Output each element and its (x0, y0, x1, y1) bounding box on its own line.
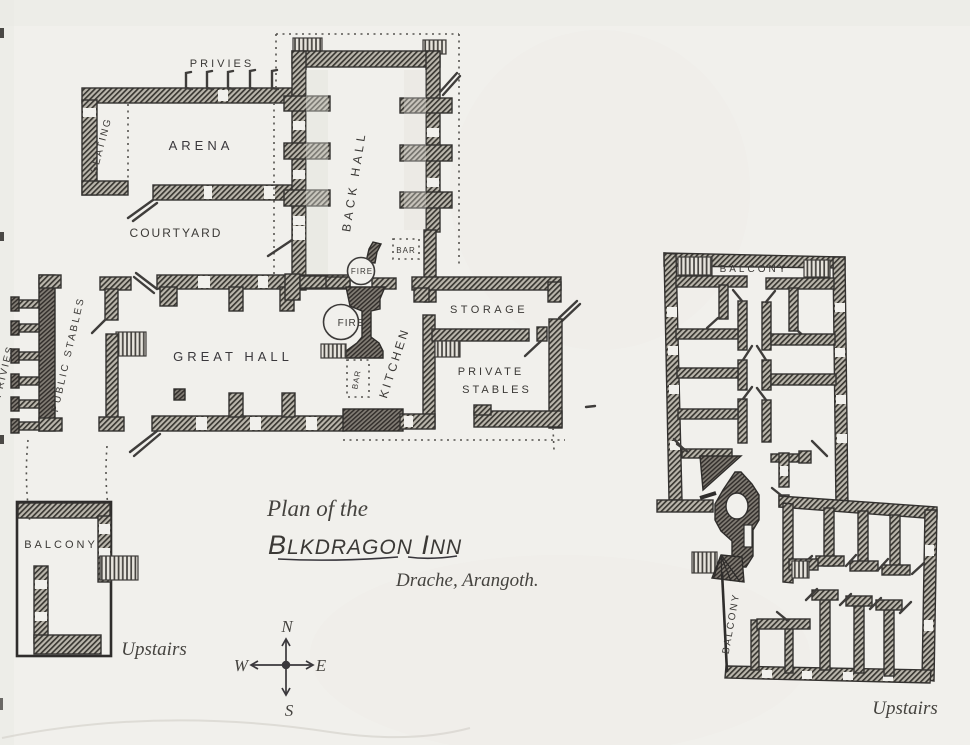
svg-text:BALCONY: BALCONY (720, 264, 789, 275)
svg-text:S: S (285, 701, 294, 720)
svg-text:Plan of the: Plan of the (266, 496, 368, 521)
svg-text:STABLES: STABLES (462, 384, 532, 396)
svg-text:FIRE: FIRE (351, 267, 373, 276)
svg-text:FIRE: FIRE (338, 318, 365, 329)
svg-text:Upstairs: Upstairs (121, 639, 186, 660)
svg-text:BAR: BAR (396, 246, 415, 255)
svg-text:BALCONY: BALCONY (24, 539, 98, 551)
svg-text:ARENA: ARENA (169, 138, 234, 153)
svg-text:STORAGE: STORAGE (450, 304, 528, 316)
svg-text:W: W (234, 656, 250, 675)
svg-text:PRIVATE: PRIVATE (458, 366, 524, 378)
svg-text:GREAT HALL: GREAT HALL (173, 349, 293, 364)
svg-text:E: E (315, 656, 327, 675)
svg-text:Drache, Arangoth.: Drache, Arangoth. (395, 570, 539, 591)
svg-text:N: N (280, 617, 294, 636)
svg-text:Upstairs: Upstairs (872, 698, 937, 719)
svg-text:PRIVIES: PRIVIES (190, 58, 254, 70)
svg-text:COURTYARD: COURTYARD (130, 226, 223, 240)
